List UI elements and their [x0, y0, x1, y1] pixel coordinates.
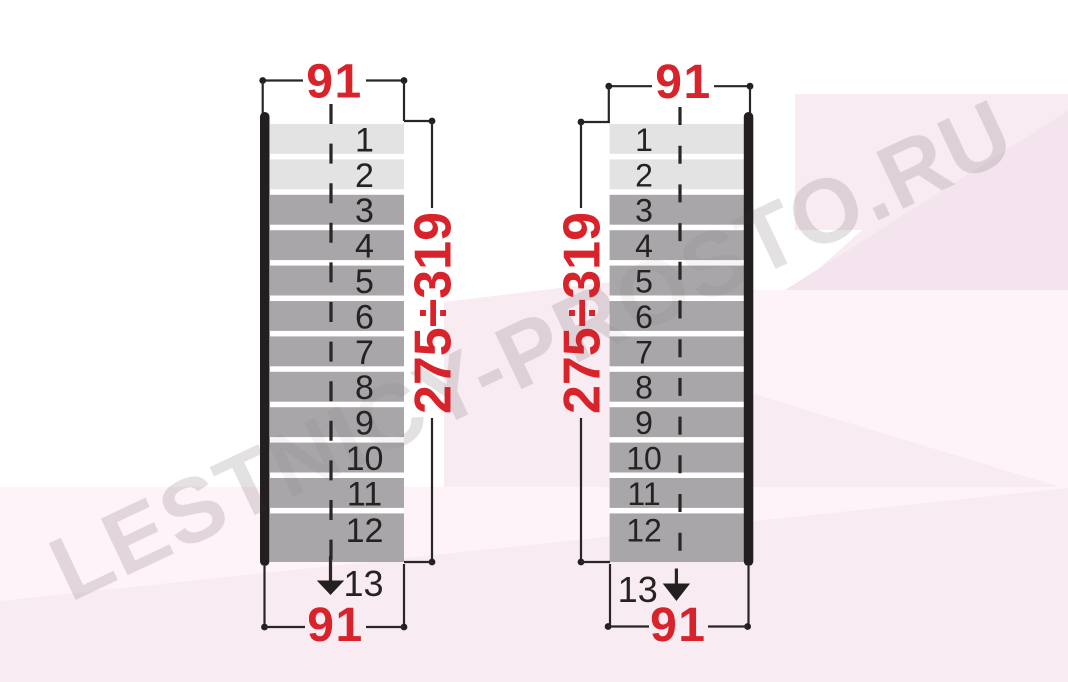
svg-text:7: 7	[355, 334, 374, 372]
svg-text:10: 10	[626, 441, 662, 477]
svg-text:91: 91	[306, 56, 362, 109]
svg-text:13: 13	[343, 563, 383, 604]
svg-text:91: 91	[650, 599, 706, 652]
svg-text:2: 2	[635, 157, 653, 193]
svg-text:1: 1	[635, 122, 653, 158]
svg-text:6: 6	[355, 298, 374, 336]
svg-text:2: 2	[355, 157, 374, 195]
svg-text:9: 9	[635, 405, 653, 441]
svg-text:1: 1	[355, 121, 374, 159]
svg-text:3: 3	[635, 193, 653, 229]
svg-text:91: 91	[655, 56, 711, 109]
svg-text:8: 8	[635, 370, 653, 406]
svg-text:5: 5	[355, 263, 374, 301]
svg-text:3: 3	[355, 192, 374, 230]
svg-text:11: 11	[627, 476, 660, 512]
svg-text:12: 12	[626, 512, 662, 548]
svg-text:4: 4	[355, 228, 374, 266]
svg-text:91: 91	[307, 599, 363, 652]
svg-text:12: 12	[346, 512, 384, 550]
